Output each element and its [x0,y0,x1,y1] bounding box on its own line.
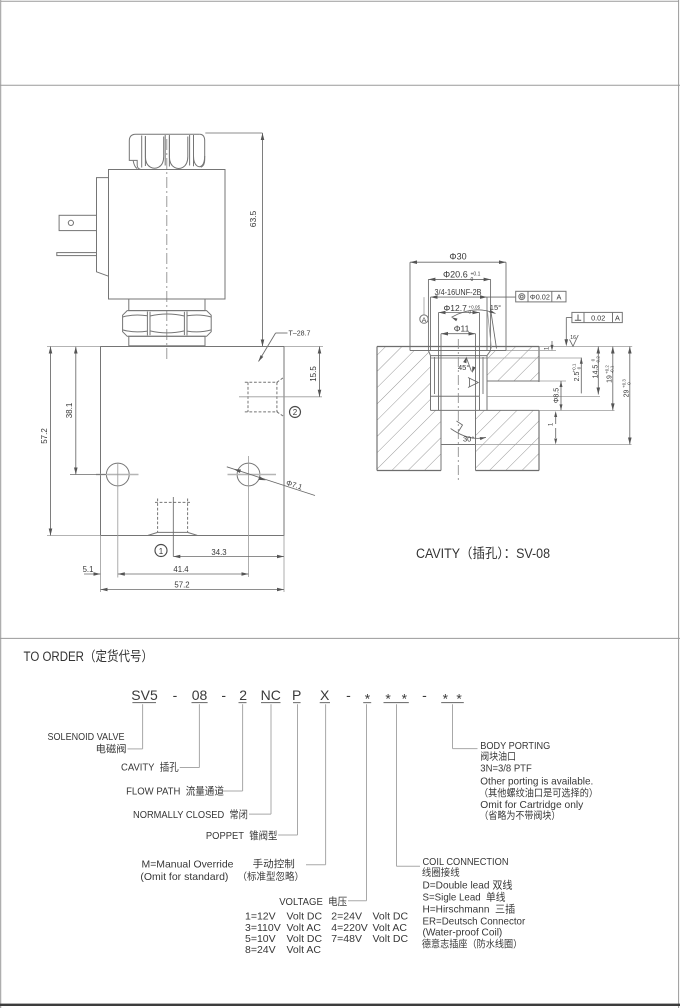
svg-text:30°: 30° [463,435,474,444]
svg-text:-0.2: -0.2 [595,356,600,364]
svg-text:Φ8.5: Φ8.5 [553,388,560,403]
svg-text:7=48V: 7=48V [331,933,362,945]
svg-text:SV5: SV5 [131,687,158,703]
svg-text:CAVITY 插孔: CAVITY 插孔 [121,761,179,774]
svg-text:Φ12.7: Φ12.7 [444,303,468,313]
svg-text:（标准型忽略）: （标准型忽略） [238,870,305,883]
svg-text:(Omit for standard): (Omit for standard) [140,871,228,883]
svg-text:15°: 15° [490,303,501,312]
svg-text:A: A [422,317,427,324]
svg-text:15.5: 15.5 [309,366,318,382]
svg-text:Omit for Cartridge only: Omit for Cartridge only [480,799,584,811]
svg-text:57.2: 57.2 [40,428,49,444]
svg-text:19: 19 [607,375,614,383]
svg-text:M=Manual Override: M=Manual Override [142,858,234,870]
svg-text:P: P [292,687,301,703]
svg-text:T–28.7: T–28.7 [289,329,311,338]
svg-text:1: 1 [159,547,164,556]
svg-text:38.1: 38.1 [65,402,74,418]
svg-text:Volt AC: Volt AC [287,944,322,956]
svg-text:08: 08 [192,687,208,703]
svg-text:-: - [422,687,427,703]
svg-text:14.5: 14.5 [592,365,599,379]
svg-text:Φ0.02: Φ0.02 [530,292,550,301]
svg-text:CAVITY（插孔）：SV-08: CAVITY（插孔）：SV-08 [416,546,550,561]
svg-text:电磁阀: 电磁阀 [96,743,127,756]
svg-text:Φ7.1: Φ7.1 [285,478,303,492]
svg-text:X: X [320,687,330,703]
svg-text:29: 29 [624,390,631,398]
svg-text:2: 2 [293,408,298,417]
svg-text:（省略为不带阀块）: （省略为不带阀块） [479,809,560,822]
svg-text:Φ11: Φ11 [454,324,470,334]
svg-text:*: * [365,690,371,706]
svg-text:0: 0 [471,277,474,283]
svg-text:*: * [456,690,462,706]
svg-text:Φ30: Φ30 [449,251,466,261]
svg-text:TO ORDER（定货代号）: TO ORDER（定货代号） [24,648,154,664]
svg-text:34.3: 34.3 [211,548,226,557]
svg-text:0: 0 [577,366,582,369]
svg-text:-0.1: -0.1 [610,365,615,373]
svg-text:16: 16 [570,335,576,341]
svg-text:45°: 45° [458,363,469,372]
svg-text:（其他螺纹油口是可选择的）: （其他螺纹油口是可选择的） [479,786,598,799]
svg-text:57.2: 57.2 [174,581,189,590]
svg-text:-: - [346,687,351,703]
svg-text:Other porting is available.: Other porting is available. [480,775,593,787]
svg-text:2: 2 [239,687,247,703]
svg-text:S=Sigle Lead 单线: S=Sigle Lead 单线 [423,891,506,904]
svg-text:-: - [173,687,178,703]
svg-text:VOLTAGE 电压: VOLTAGE 电压 [279,895,347,908]
svg-text:SOLENOID VALVE: SOLENOID VALVE [48,731,125,743]
svg-text:3/4-16UNF-2B: 3/4-16UNF-2B [435,287,482,297]
svg-text:A: A [556,292,561,301]
svg-text:POPPET 锥阀型: POPPET 锥阀型 [206,829,278,842]
svg-text:0: 0 [627,382,632,385]
svg-text:41.4: 41.4 [173,565,189,574]
svg-text:NC: NC [261,687,281,703]
svg-text:A: A [615,313,620,322]
svg-text:8=24V: 8=24V [245,944,276,956]
svg-text:*: * [443,690,449,706]
svg-text:BODY PORTING: BODY PORTING [480,740,550,752]
svg-text:3N=3/8 PTF: 3N=3/8 PTF [480,763,532,775]
svg-text:*: * [402,690,408,706]
svg-text:0.02: 0.02 [591,313,605,322]
svg-text:-: - [221,687,226,703]
svg-text:Φ20.6: Φ20.6 [443,270,468,280]
svg-text:Volt DC: Volt DC [373,933,409,945]
svg-text:1: 1 [549,422,555,426]
svg-text:D=Double lead 双线: D=Double lead 双线 [423,879,513,892]
svg-text:NORMALLY CLOSED 常闭: NORMALLY CLOSED 常闭 [133,808,248,821]
svg-text:63.5: 63.5 [248,210,258,227]
svg-text:阀块油口: 阀块油口 [480,750,516,763]
svg-text:5.1: 5.1 [83,565,94,574]
svg-text:*: * [385,690,391,706]
svg-text:线圈接线: 线圈接线 [422,866,460,879]
svg-text:H=Hirschmann 三插: H=Hirschmann 三插 [423,903,516,916]
svg-text:FLOW PATH 流量通道: FLOW PATH 流量通道 [126,784,224,797]
svg-text:手动控制: 手动控制 [253,857,295,870]
svg-text:COIL CONNECTION: COIL CONNECTION [423,856,509,868]
svg-text:德意志插座（防水线圈）: 德意志插座（防水线圈） [422,937,522,950]
svg-text:(Water-proof Coil): (Water-proof Coil) [423,927,503,939]
